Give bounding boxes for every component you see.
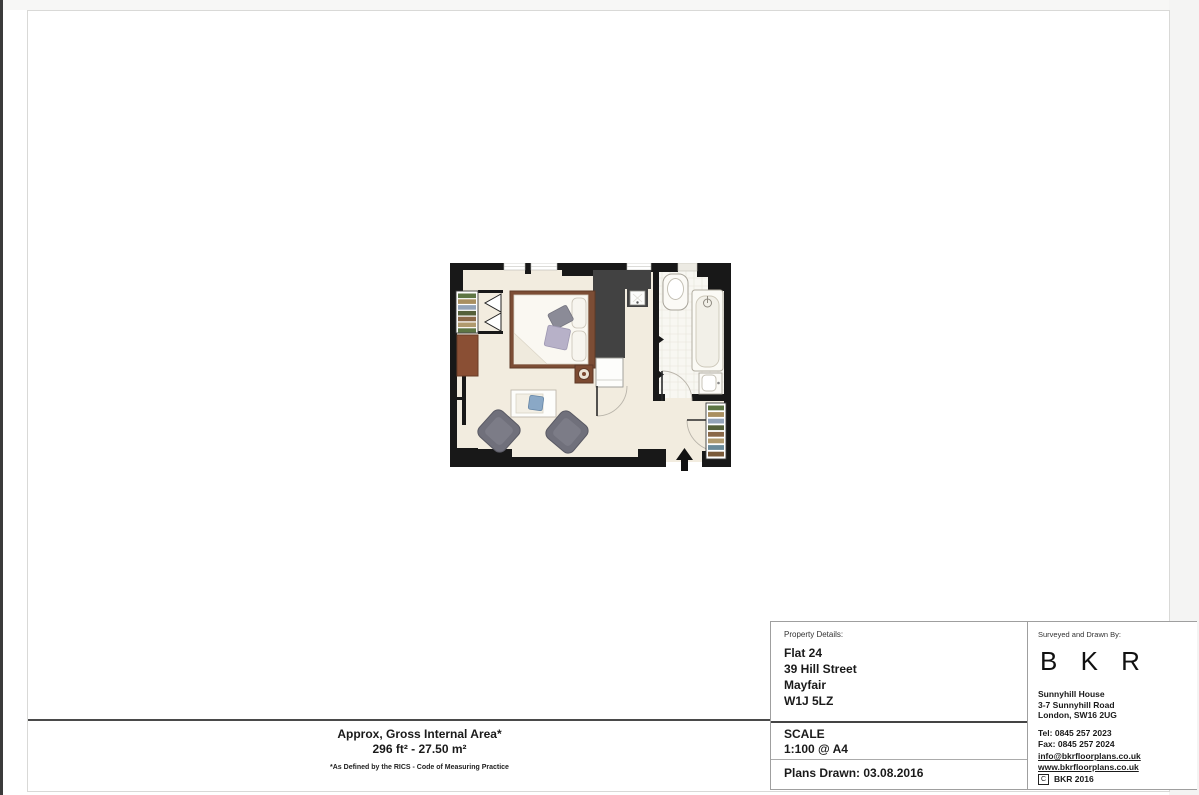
scale-value: 1:100 @ A4 xyxy=(784,742,1029,757)
surveyor-email-link: info@bkrfloorplans.co.uk xyxy=(1038,751,1141,761)
property-address: Flat 24 39 Hill Street Mayfair W1J 5LZ xyxy=(784,645,857,709)
bkr-logo: B K R xyxy=(1040,646,1148,677)
area-title: Approx, Gross Internal Area* xyxy=(48,727,791,742)
floor-plan xyxy=(450,263,731,471)
fax-line: Fax: 0845 257 2024 xyxy=(1038,739,1115,750)
copyright-text: BKR 2016 xyxy=(1054,774,1094,784)
document-canvas: Approx, Gross Internal Area* 296 ft² - 2… xyxy=(0,0,1199,795)
surveyor-address-line: London, SW16 2UG xyxy=(1038,710,1117,721)
pillow xyxy=(572,331,586,361)
copyright-icon: C xyxy=(1038,774,1049,785)
address-line: 39 Hill Street xyxy=(784,661,857,677)
side-table xyxy=(575,365,593,383)
scale-label: SCALE xyxy=(784,727,1029,742)
surveyor-address-line: 3-7 Sunnyhill Road xyxy=(1038,700,1117,711)
surveyor-address: Sunnyhill House 3-7 Sunnyhill Road Londo… xyxy=(1038,689,1117,721)
tel-line: Tel: 0845 257 2023 xyxy=(1038,728,1115,739)
floorplan-page: Approx, Gross Internal Area* 296 ft² - 2… xyxy=(27,10,1170,792)
surveyor-label: Surveyed and Drawn By: xyxy=(1038,630,1121,639)
cabinet xyxy=(457,335,478,376)
address-line: Flat 24 xyxy=(784,645,857,661)
cushion-purple xyxy=(544,325,571,350)
bookshelf-right xyxy=(706,403,726,459)
bathtub xyxy=(692,290,723,371)
appliance-unit xyxy=(596,358,623,387)
area-summary: Approx, Gross Internal Area* 296 ft² - 2… xyxy=(48,727,791,771)
pillow xyxy=(572,298,586,328)
plans-drawn-section: Plans Drawn: 03.08.2016 xyxy=(771,759,1029,780)
bed xyxy=(510,291,595,368)
left-edge-strip xyxy=(0,0,3,795)
surveyor-website-link: www.bkrfloorplans.co.uk xyxy=(1038,762,1139,772)
address-line: Mayfair xyxy=(784,677,857,693)
copyright-line: CBKR 2016 xyxy=(1038,774,1094,785)
area-footnote: *As Defined by the RICS - Code of Measur… xyxy=(48,764,791,771)
property-details-box: Property Details: Flat 24 39 Hill Street… xyxy=(770,621,1030,790)
scale-section: SCALE 1:100 @ A4 xyxy=(771,721,1029,757)
bookshelf-left xyxy=(456,291,478,333)
surveyor-address-line: Sunnyhill House xyxy=(1038,689,1117,700)
bathroom-sink xyxy=(699,373,722,394)
plans-drawn-date: Plans Drawn: 03.08.2016 xyxy=(784,766,1029,780)
property-details-label: Property Details: xyxy=(784,630,843,639)
background-top-strip xyxy=(0,0,1199,10)
laptop xyxy=(528,395,544,411)
floor-plan-drawing xyxy=(450,263,731,471)
wash-basin xyxy=(630,291,645,305)
coffee-table xyxy=(511,390,556,417)
address-line: W1J 5LZ xyxy=(784,693,857,709)
surveyor-box: Surveyed and Drawn By: B K R Sunnyhill H… xyxy=(1027,621,1197,790)
surveyor-phone: Tel: 0845 257 2023 Fax: 0845 257 2024 xyxy=(1038,728,1115,750)
area-value: 296 ft² - 27.50 m² xyxy=(48,742,791,757)
footer-divider xyxy=(28,719,771,721)
toilet xyxy=(663,274,688,310)
